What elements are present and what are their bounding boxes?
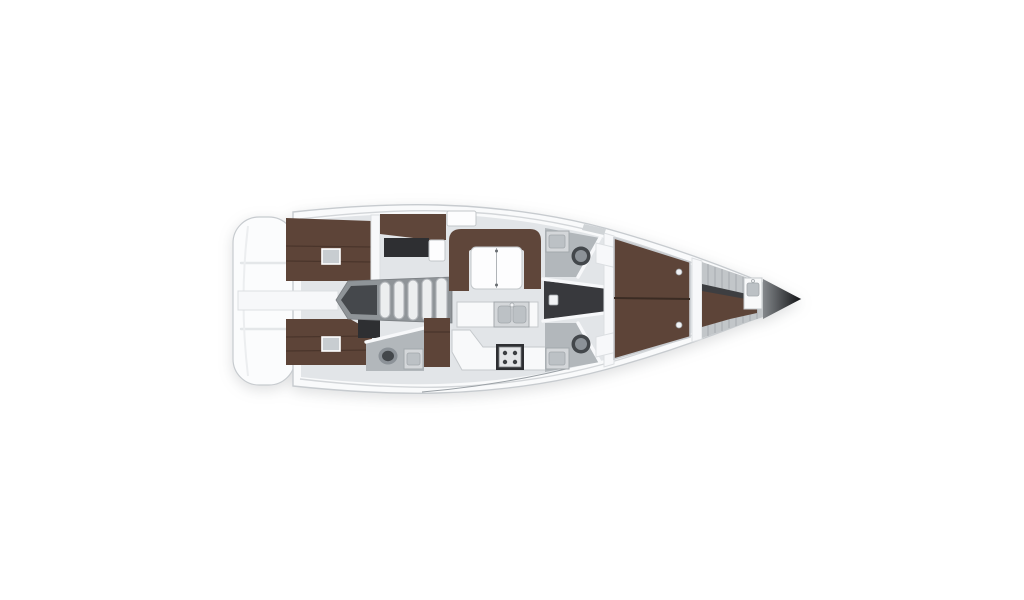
berth-hatch	[322, 337, 340, 351]
table-hinge	[495, 284, 498, 287]
table-hinge	[495, 250, 498, 253]
head-sink	[549, 235, 565, 248]
deck-hatch	[447, 211, 476, 226]
galley-sink-bowl	[498, 306, 511, 323]
anchor-locker	[763, 279, 801, 319]
berth-hatch	[322, 249, 340, 264]
port-aft-cabin	[286, 215, 380, 290]
burner	[503, 360, 507, 364]
head-sink	[549, 352, 565, 365]
burner	[513, 360, 517, 364]
crew-cabin	[702, 262, 766, 338]
aft-cabin-divider	[238, 291, 338, 310]
floor-plan-canvas	[0, 0, 1024, 600]
step-tread	[422, 279, 432, 321]
step-tread	[436, 278, 447, 322]
reading-light	[676, 269, 682, 275]
burner	[513, 351, 517, 355]
forward-passage	[543, 279, 612, 321]
reading-light	[676, 322, 682, 328]
head-sink	[407, 353, 420, 365]
yacht-floor-plan	[0, 0, 1024, 600]
chart-table	[384, 238, 429, 257]
toilet-bowl	[382, 351, 394, 361]
nav-stool	[429, 240, 445, 261]
wardrobe-dark	[358, 318, 380, 338]
step-tread	[408, 280, 418, 320]
companionway-steps	[336, 277, 452, 323]
forward-bulkhead	[692, 258, 702, 342]
stove-top	[499, 347, 521, 367]
cabin-wall	[371, 215, 380, 290]
bow-tip	[763, 279, 801, 319]
toilet-bowl	[575, 250, 587, 262]
step-tread	[380, 282, 390, 318]
berth-centerline	[614, 298, 690, 299]
step-tread	[394, 281, 404, 319]
toilet-bowl	[575, 338, 587, 350]
boat	[233, 205, 801, 393]
faucet	[510, 303, 514, 307]
crew-sink	[747, 283, 759, 296]
faucet	[752, 280, 755, 283]
door-latch	[549, 295, 558, 305]
galley-chaise-seat	[424, 318, 450, 367]
galley-sink-bowl	[513, 306, 526, 323]
burner	[503, 351, 507, 355]
